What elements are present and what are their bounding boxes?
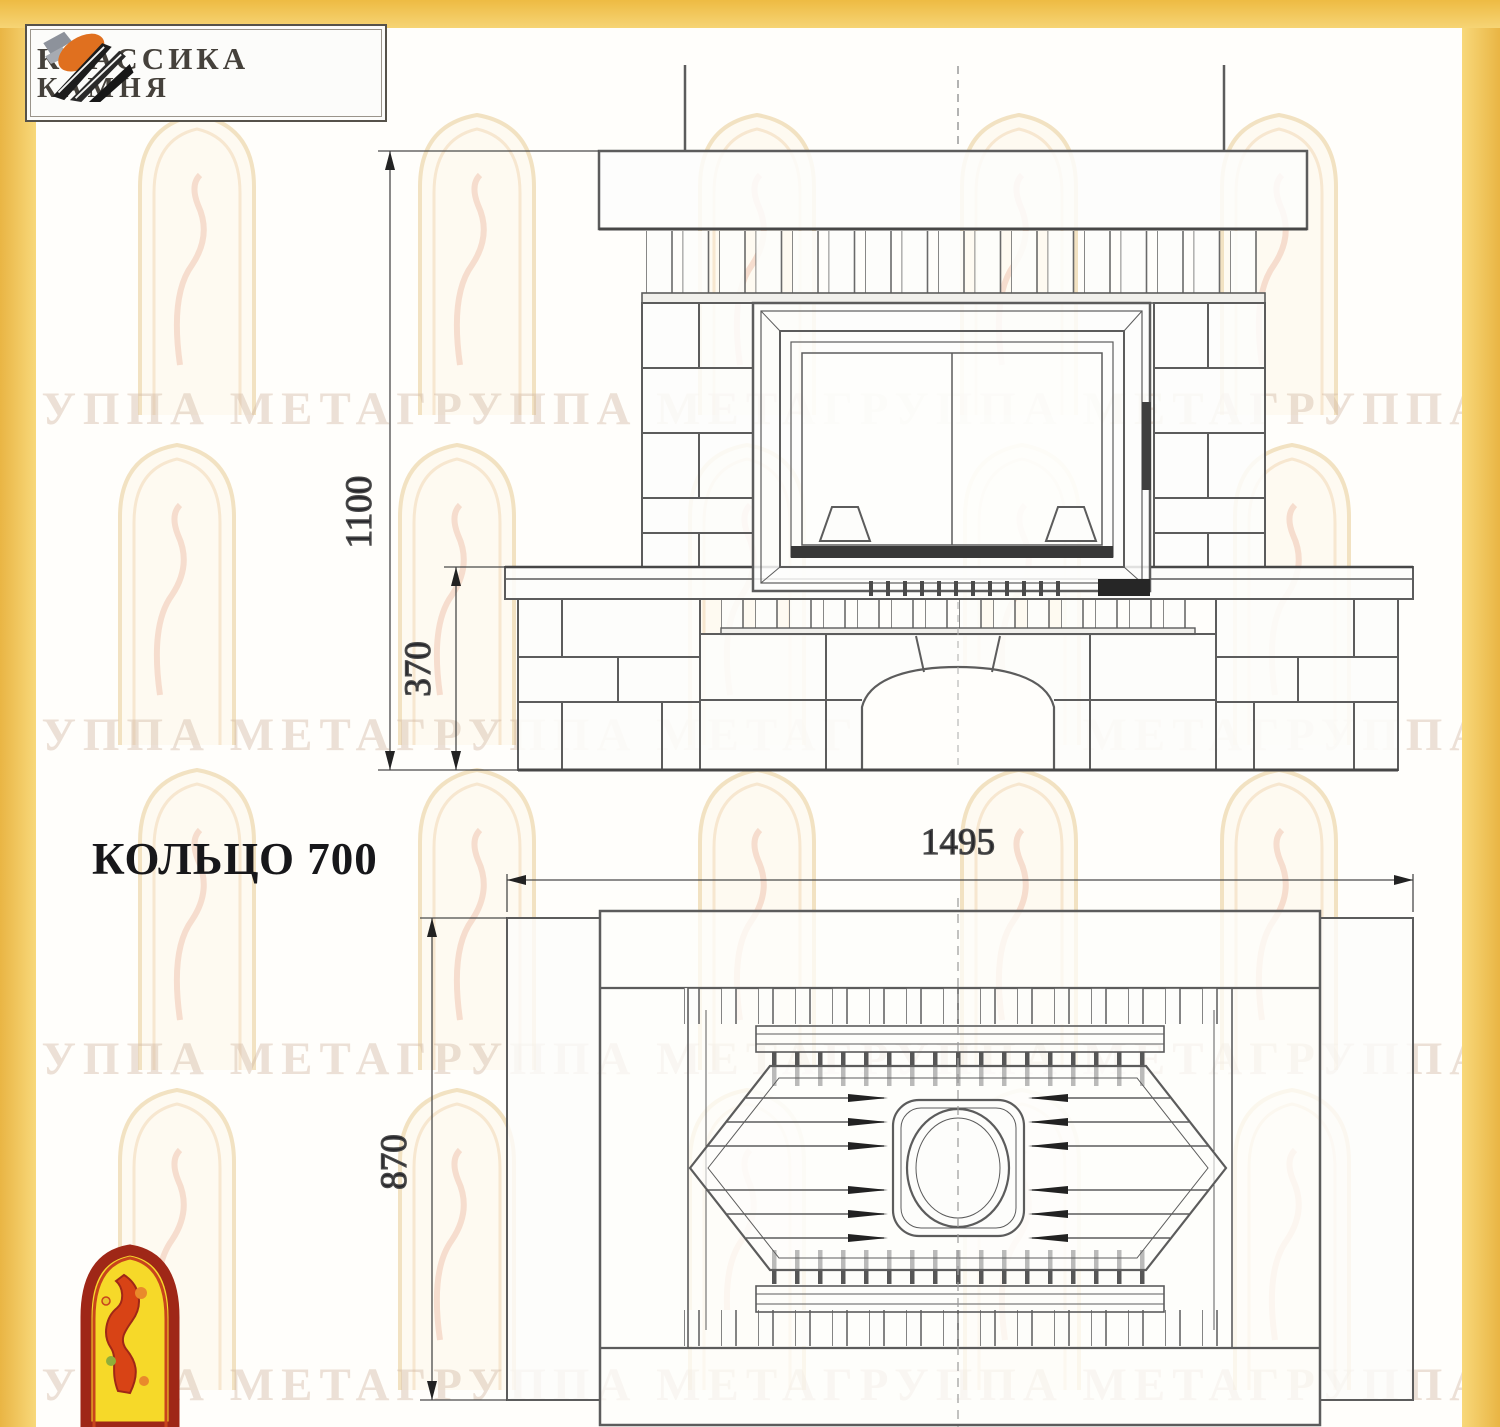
base-front	[518, 599, 1398, 770]
model-title: КОЛЬЦО 700	[92, 833, 378, 885]
dimension-plan-width: 1495	[507, 822, 1413, 912]
dim-label-870: 870	[374, 1134, 415, 1190]
arch-emblem	[78, 1241, 182, 1427]
base-left-block	[518, 599, 700, 770]
pilaster-left	[642, 303, 753, 567]
dentil-row	[642, 231, 1262, 293]
base-right-block	[1216, 599, 1398, 770]
technical-drawing: 1100 370 1495	[0, 0, 1500, 1427]
page: ГРУППА МЕТАГРУППА МЕТАГРУППА МЕТАГРУППА …	[0, 0, 1500, 1427]
vent-ticks	[869, 581, 1073, 596]
brand-logo-icon	[39, 26, 135, 102]
door-handle	[1142, 402, 1151, 490]
central-ring	[893, 1100, 1024, 1236]
dim-label-1495: 1495	[921, 822, 995, 863]
pilaster-right	[1154, 303, 1265, 567]
dimension-base-height: 370	[398, 567, 507, 770]
dentil-rail	[642, 293, 1265, 303]
dimension-plan-depth: 870	[374, 918, 507, 1400]
plan-view	[507, 898, 1413, 1427]
dim-label-370: 370	[398, 641, 439, 697]
front-view	[505, 65, 1413, 770]
plan-wing-left	[507, 918, 600, 1400]
grate-strip	[791, 546, 1113, 558]
dim-label-1100: 1100	[339, 476, 380, 549]
plan-teeth-top	[682, 988, 1238, 1024]
plan-teeth-bottom	[682, 1310, 1238, 1346]
control-plate	[1098, 579, 1150, 596]
firebox-front	[753, 303, 1151, 596]
brand-logo: КЛАССИКА КАМНЯ	[25, 24, 387, 122]
plan-wing-right	[1320, 918, 1413, 1400]
mantel-beam	[599, 151, 1307, 229]
